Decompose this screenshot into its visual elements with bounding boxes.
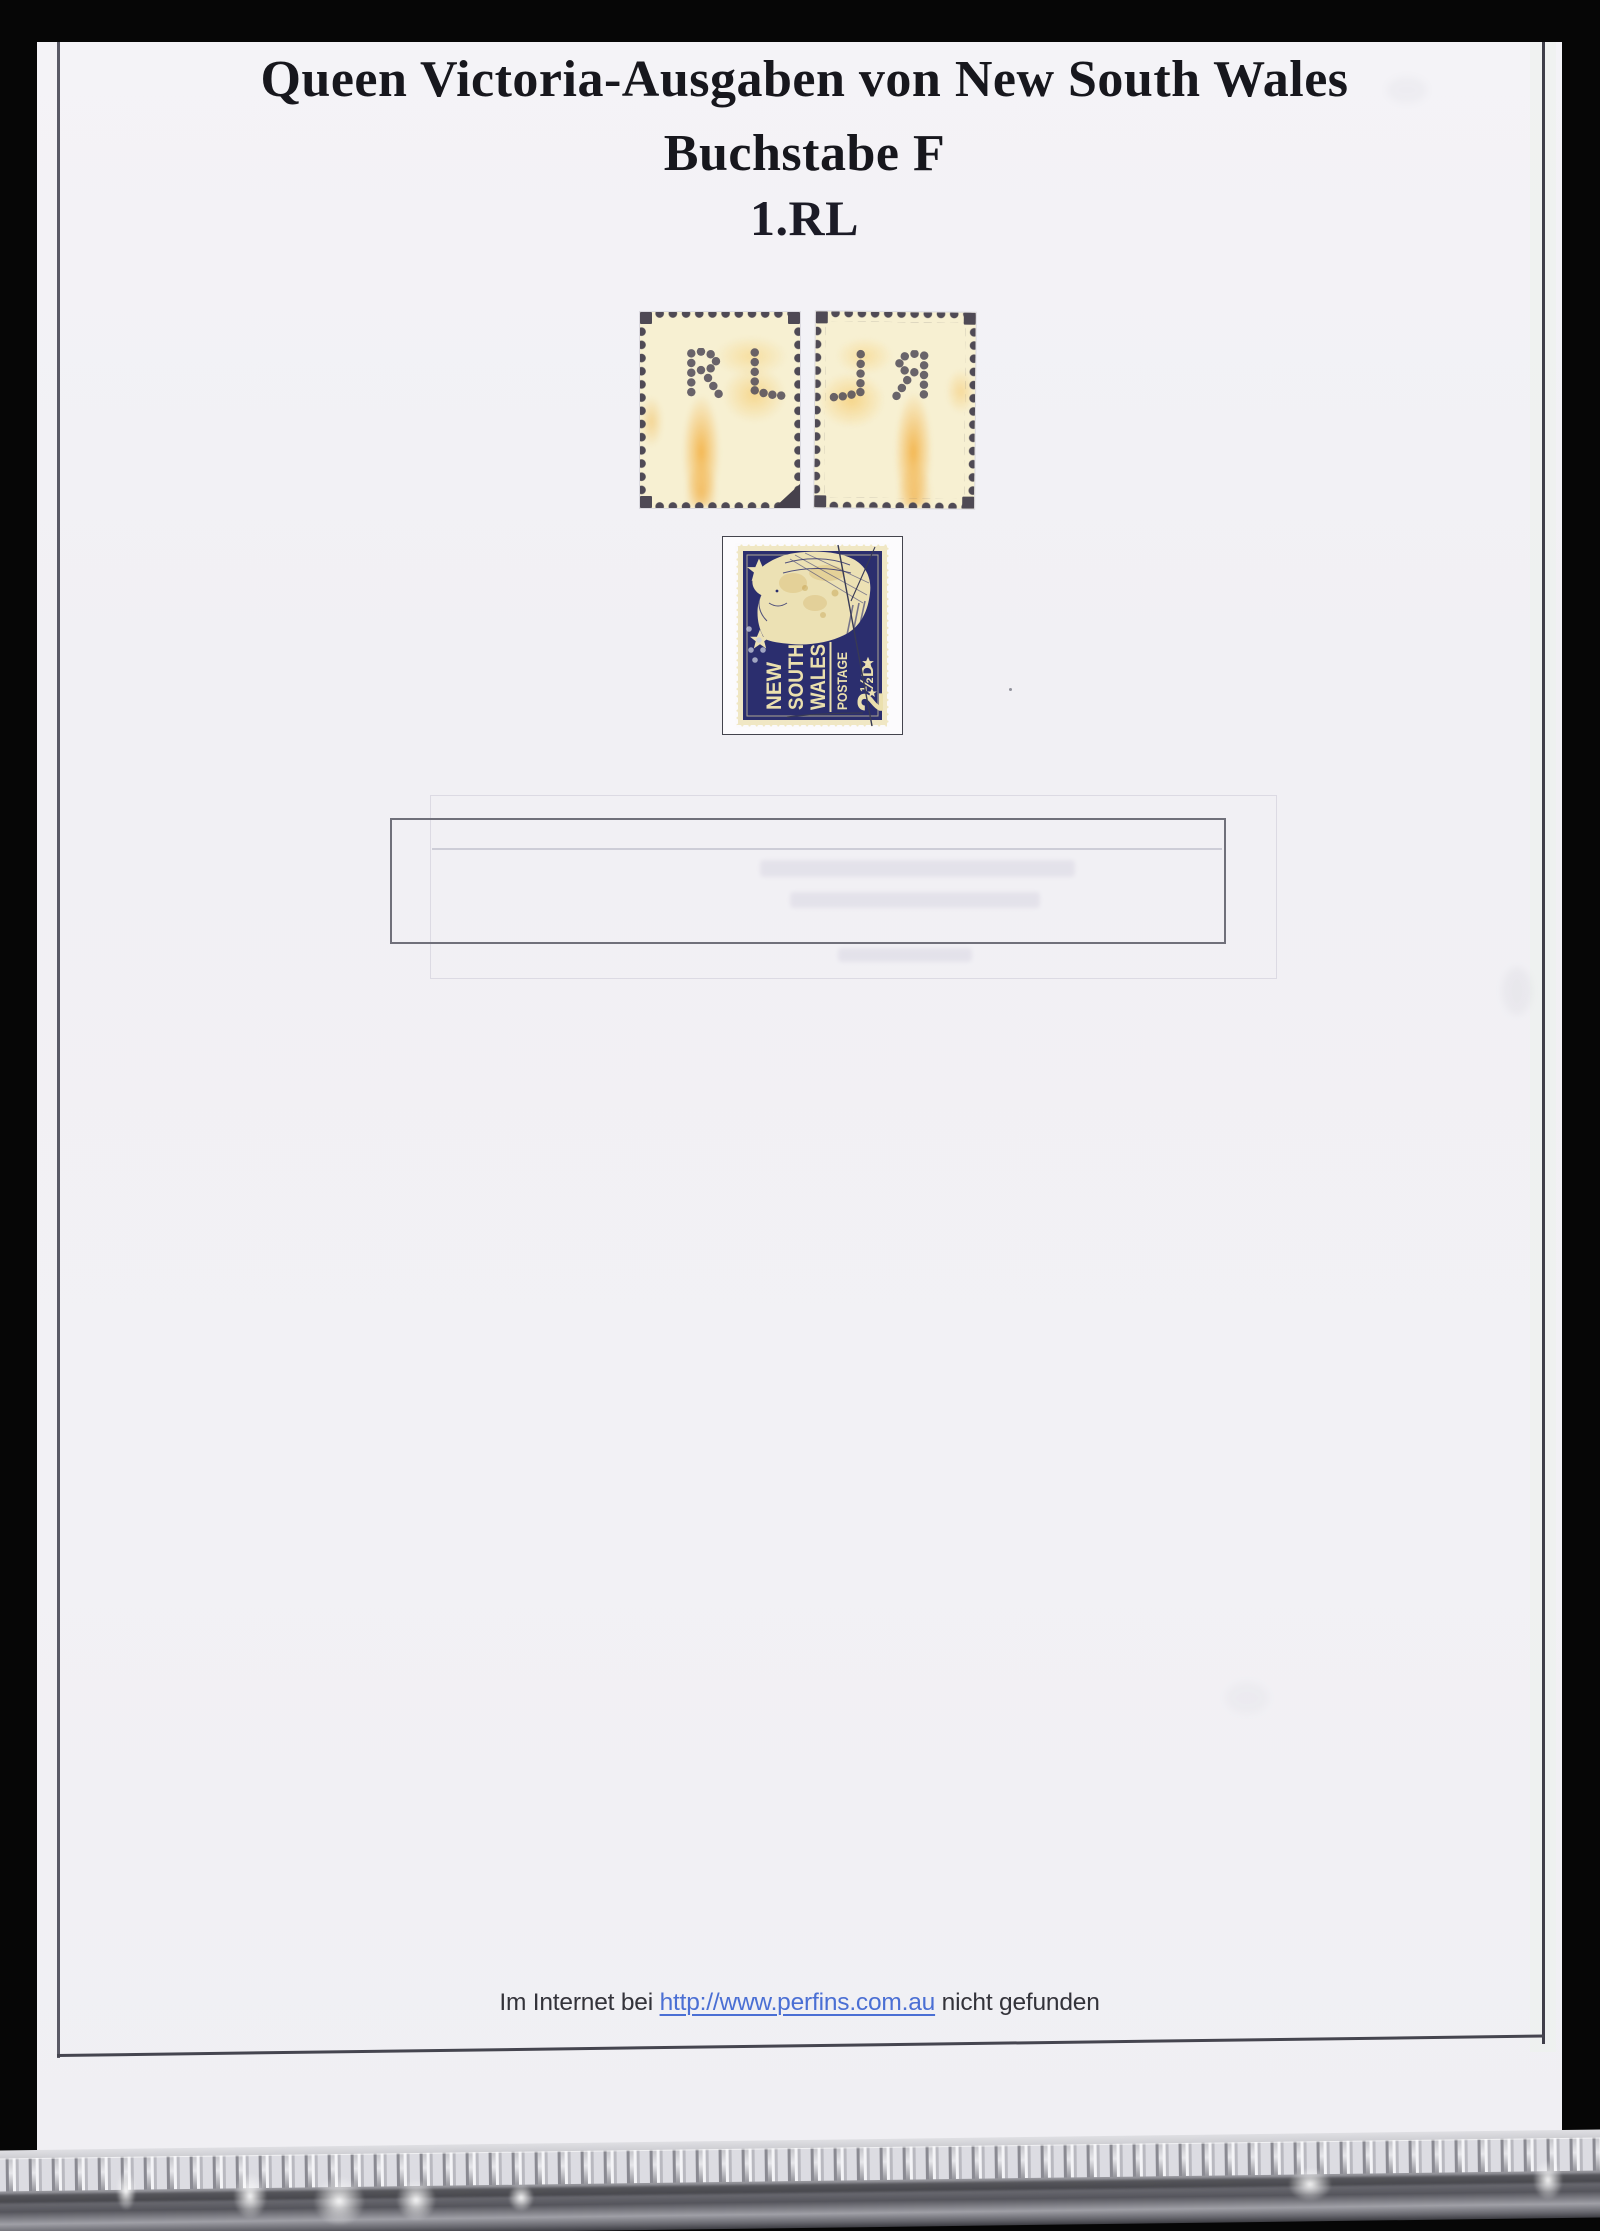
perfin-letters-rl-mirrored bbox=[825, 349, 929, 403]
binding-highlight bbox=[116, 2171, 137, 2211]
perfin-stamp-right bbox=[814, 311, 976, 508]
stamp-corner bbox=[640, 312, 652, 324]
page-subtitle: Buchstabe F bbox=[37, 124, 1562, 184]
bleedthrough-text bbox=[790, 892, 1040, 908]
stamp-mount: NEW SOUTH WALES POSTAGE 2½D bbox=[722, 536, 903, 735]
perfins-link[interactable]: http://www.perfins.com.au bbox=[660, 1989, 936, 2016]
page-border-bottom bbox=[57, 2035, 1544, 2057]
stamp-corner bbox=[962, 497, 974, 509]
scan-smudge bbox=[1502, 967, 1532, 1015]
binding-highlight bbox=[508, 2183, 534, 2211]
nsw-text-south: SOUTH bbox=[785, 644, 808, 710]
stamp-corner bbox=[964, 313, 976, 325]
binding-highlight bbox=[1533, 2160, 1564, 2200]
page-title: Queen Victoria-Ausgaben von New South Wa… bbox=[37, 50, 1562, 110]
nsw-text-new: NEW bbox=[763, 662, 786, 710]
nsw-text-postage: POSTAGE bbox=[835, 652, 850, 710]
page-border-left bbox=[57, 42, 60, 2058]
footer-prefix: Im Internet bei bbox=[499, 1989, 659, 2016]
perfin-letters-rl bbox=[686, 348, 790, 401]
footer-note: Im Internet bei http://www.perfins.com.a… bbox=[37, 1989, 1562, 2017]
scan-smudge bbox=[1225, 1682, 1269, 1714]
scan-speck bbox=[1009, 688, 1012, 691]
nsw-text-wales: WALES bbox=[807, 644, 830, 710]
empty-stamp-box bbox=[390, 818, 1226, 944]
nsw-blue-stamp: NEW SOUTH WALES POSTAGE 2½D bbox=[735, 543, 890, 728]
bleedthrough-rule bbox=[432, 848, 1222, 850]
binding-highlight bbox=[1288, 2167, 1332, 2202]
album-page: Queen Victoria-Ausgaben von New South Wa… bbox=[37, 42, 1562, 2160]
page-border-right bbox=[1542, 42, 1545, 2044]
section-heading: 1.RL bbox=[37, 189, 1562, 247]
bleedthrough-text bbox=[838, 948, 972, 962]
stamp-stain bbox=[642, 314, 798, 506]
scan-smudge bbox=[1387, 77, 1427, 103]
footer-suffix: nicht gefunden bbox=[935, 1989, 1100, 2016]
bleedthrough-text bbox=[760, 860, 1075, 877]
stamp-corner bbox=[814, 495, 826, 507]
binding-highlight bbox=[233, 2173, 268, 2219]
stamp-stain bbox=[816, 313, 974, 506]
binding-highlight bbox=[396, 2179, 437, 2222]
binding-highlight bbox=[313, 2176, 366, 2227]
stamp-corner bbox=[816, 311, 828, 323]
stamp-corner bbox=[788, 312, 800, 324]
scanned-album-page-screenshot: Queen Victoria-Ausgaben von New South Wa… bbox=[0, 0, 1600, 2231]
stamp-corner bbox=[640, 496, 652, 508]
perfin-stamp-left bbox=[640, 312, 800, 508]
